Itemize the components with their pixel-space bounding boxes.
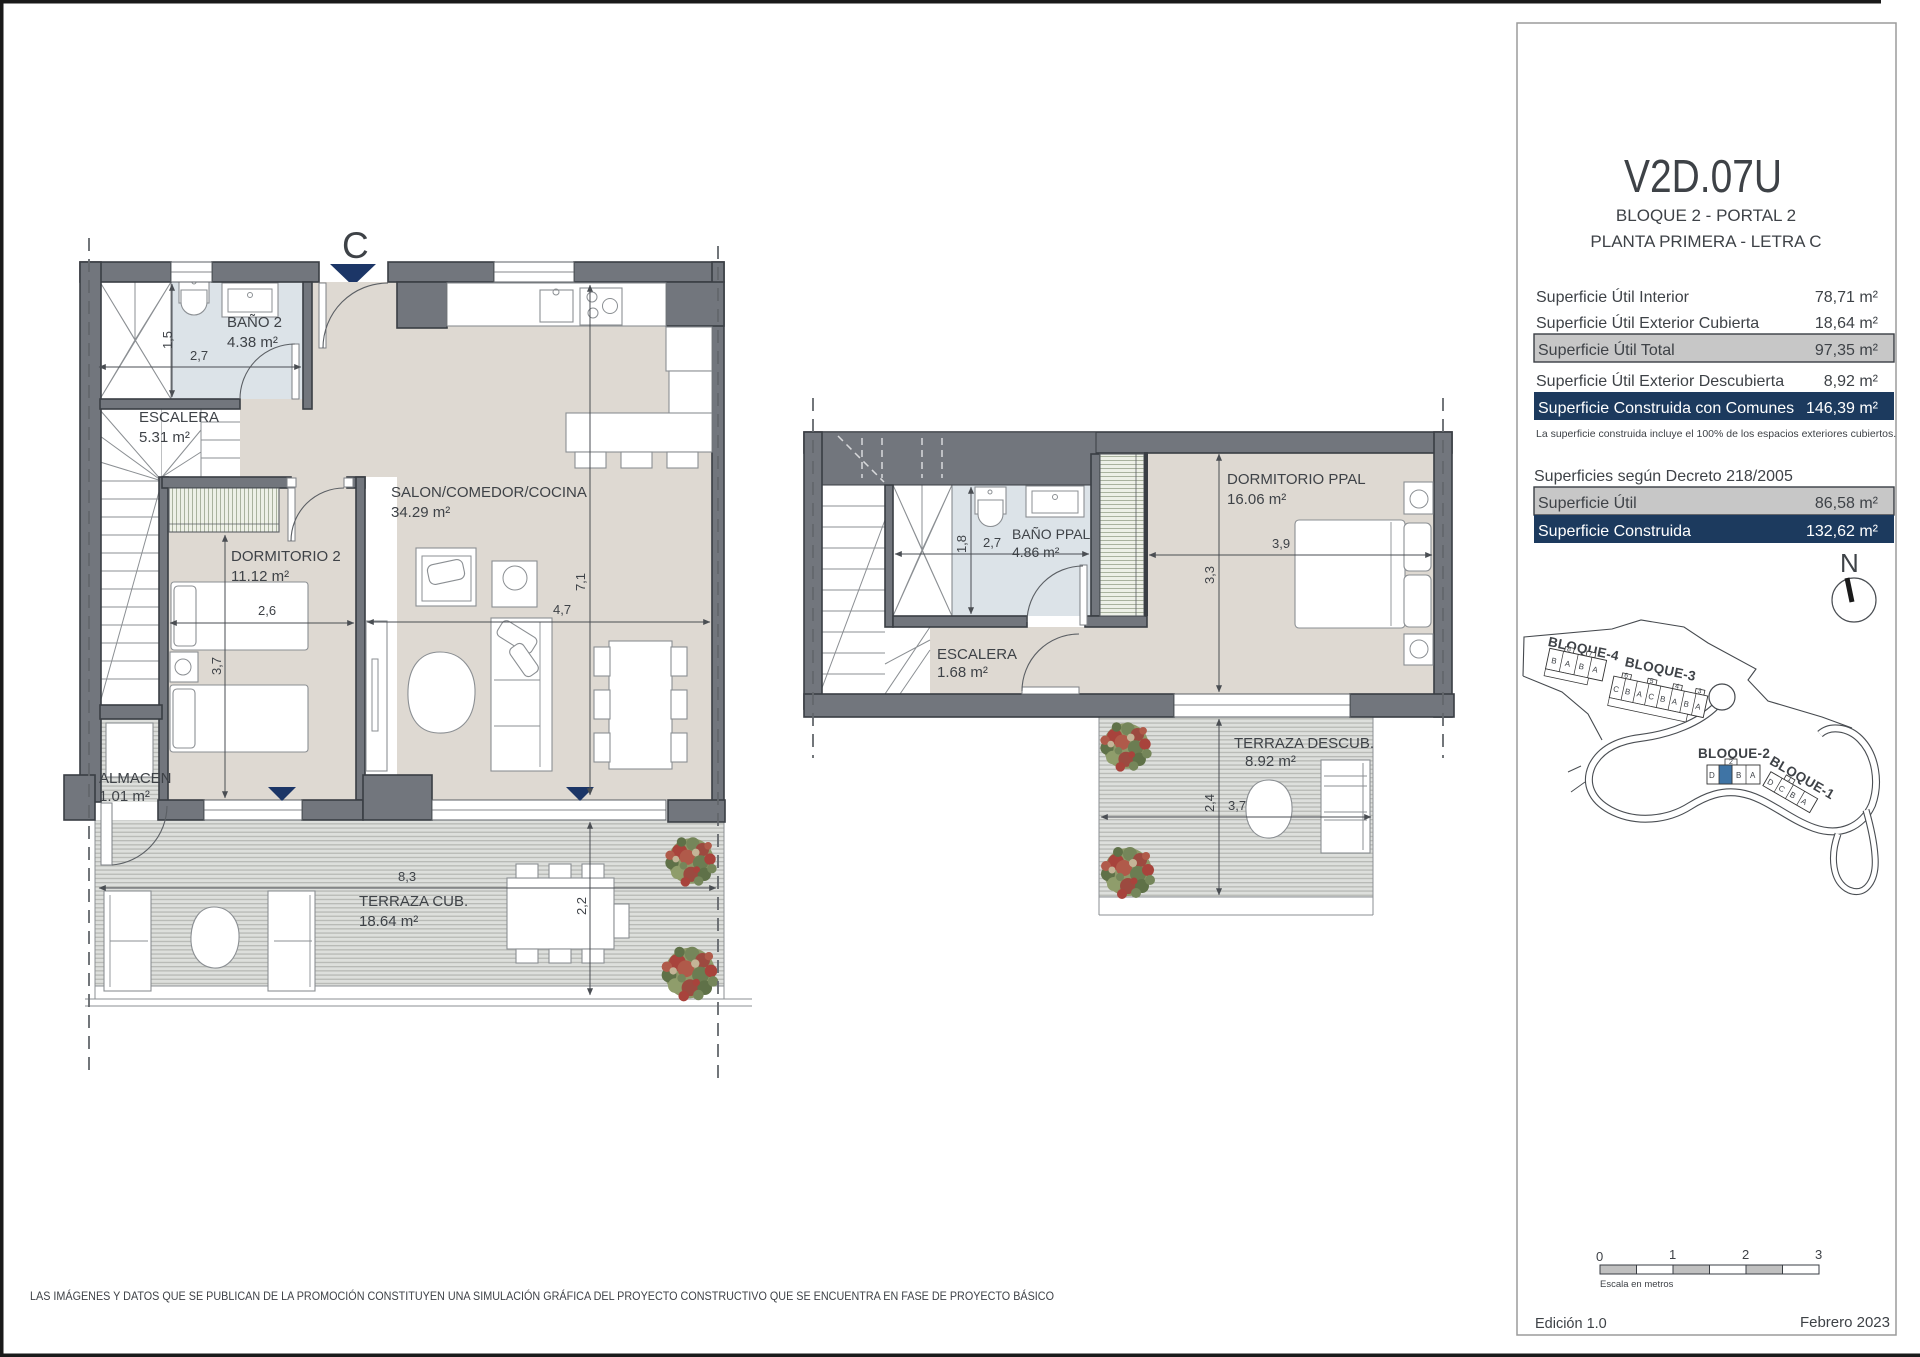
svg-text:97,35 m²: 97,35 m² [1815, 342, 1879, 359]
svg-text:Febrero 2023: Febrero 2023 [1800, 1314, 1890, 1331]
svg-text:V2D.07U: V2D.07U [1624, 150, 1782, 202]
svg-text:DORMITORIO PPAL: DORMITORIO PPAL [1227, 471, 1366, 488]
svg-text:Superficie Útil: Superficie Útil [1538, 493, 1637, 512]
svg-text:B: B [1736, 771, 1741, 780]
svg-text:Superficie Construida con Comu: Superficie Construida con Comunes [1538, 400, 1794, 417]
svg-text:2,7: 2,7 [983, 535, 1001, 550]
svg-text:1.01 m²: 1.01 m² [99, 788, 150, 805]
svg-text:D: D [1709, 771, 1715, 780]
svg-text:86,58 m²: 86,58 m² [1815, 495, 1879, 512]
svg-text:La superficie construida inclu: La superficie construida incluye el 100%… [1536, 428, 1896, 440]
svg-text:3: 3 [1815, 1247, 1822, 1262]
svg-text:Escala en metros: Escala en metros [1600, 1279, 1674, 1290]
svg-text:1: 1 [1669, 1247, 1676, 1262]
svg-text:N: N [1840, 548, 1859, 578]
svg-text:8.92 m²: 8.92 m² [1245, 753, 1296, 770]
svg-text:3,7: 3,7 [1228, 798, 1246, 813]
svg-text:8,3: 8,3 [398, 869, 416, 884]
svg-text:4,7: 4,7 [553, 602, 571, 617]
svg-text:ESCALERA: ESCALERA [937, 646, 1017, 663]
svg-text:2,7: 2,7 [190, 348, 208, 363]
svg-text:Superficie Útil Interior: Superficie Útil Interior [1536, 287, 1690, 306]
svg-text:34.29 m²: 34.29 m² [391, 504, 450, 521]
svg-text:3,7: 3,7 [209, 657, 224, 675]
svg-text:78,71 m²: 78,71 m² [1815, 289, 1879, 306]
svg-text:132,62 m²: 132,62 m² [1806, 523, 1879, 540]
svg-text:11.12 m²: 11.12 m² [231, 568, 289, 585]
svg-text:146,39 m²: 146,39 m² [1806, 400, 1879, 417]
svg-text:4.38 m²: 4.38 m² [227, 334, 278, 351]
svg-text:Superficie Útil Exterior Cubie: Superficie Útil Exterior Cubierta [1536, 313, 1759, 332]
svg-text:7,1: 7,1 [573, 573, 588, 591]
svg-text:2,4: 2,4 [1202, 794, 1217, 812]
svg-text:TERRAZA CUB.: TERRAZA CUB. [359, 893, 468, 910]
svg-text:Superficie Útil Exterior Descu: Superficie Útil Exterior Descubierta [1536, 371, 1784, 390]
svg-text:3,9: 3,9 [1272, 536, 1290, 551]
svg-text:8,92 m²: 8,92 m² [1824, 373, 1879, 390]
svg-text:Superficies según Decreto 218/: Superficies según Decreto 218/2005 [1534, 468, 1793, 485]
svg-text:BAÑO 2: BAÑO 2 [227, 314, 282, 331]
svg-text:1,5: 1,5 [160, 331, 175, 349]
svg-text:4.86 m²: 4.86 m² [1012, 544, 1060, 560]
svg-text:2: 2 [1742, 1247, 1749, 1262]
svg-text:18,64 m²: 18,64 m² [1815, 315, 1879, 332]
svg-text:3,3: 3,3 [1202, 566, 1217, 584]
svg-text:BLOQUE 2 - PORTAL 2: BLOQUE 2 - PORTAL 2 [1616, 206, 1796, 225]
svg-text:18.64 m²: 18.64 m² [359, 913, 418, 930]
svg-text:1,8: 1,8 [954, 535, 969, 553]
svg-text:2,6: 2,6 [258, 603, 276, 618]
svg-text:SALON/COMEDOR/COCINA: SALON/COMEDOR/COCINA [391, 484, 587, 501]
svg-text:PLANTA PRIMERA - LETRA C: PLANTA PRIMERA - LETRA C [1590, 232, 1821, 251]
svg-text:Edición 1.0: Edición 1.0 [1535, 1316, 1607, 1332]
svg-text:C: C [342, 225, 369, 266]
svg-text:2,2: 2,2 [574, 897, 589, 915]
svg-text:Superficie Útil Total: Superficie Útil Total [1538, 340, 1675, 359]
svg-text:5.31 m²: 5.31 m² [139, 429, 190, 446]
svg-text:0: 0 [1596, 1249, 1603, 1264]
svg-text:ALMACEN: ALMACEN [99, 770, 172, 787]
svg-text:16.06 m²: 16.06 m² [1227, 491, 1286, 508]
svg-text:ESCALERA: ESCALERA [139, 409, 219, 426]
svg-text:BAÑO PPAL: BAÑO PPAL [1012, 526, 1091, 542]
svg-text:DORMITORIO 2: DORMITORIO 2 [231, 548, 341, 565]
svg-text:LAS IMÁGENES Y DATOS QUE SE PU: LAS IMÁGENES Y DATOS QUE SE PUBLICAN DE … [30, 1290, 1054, 1303]
svg-text:TERRAZA DESCUB.: TERRAZA DESCUB. [1234, 735, 1374, 752]
svg-text:A: A [1750, 771, 1756, 780]
svg-text:1.68 m²: 1.68 m² [937, 664, 988, 681]
svg-text:Superficie Construida: Superficie Construida [1538, 523, 1691, 540]
